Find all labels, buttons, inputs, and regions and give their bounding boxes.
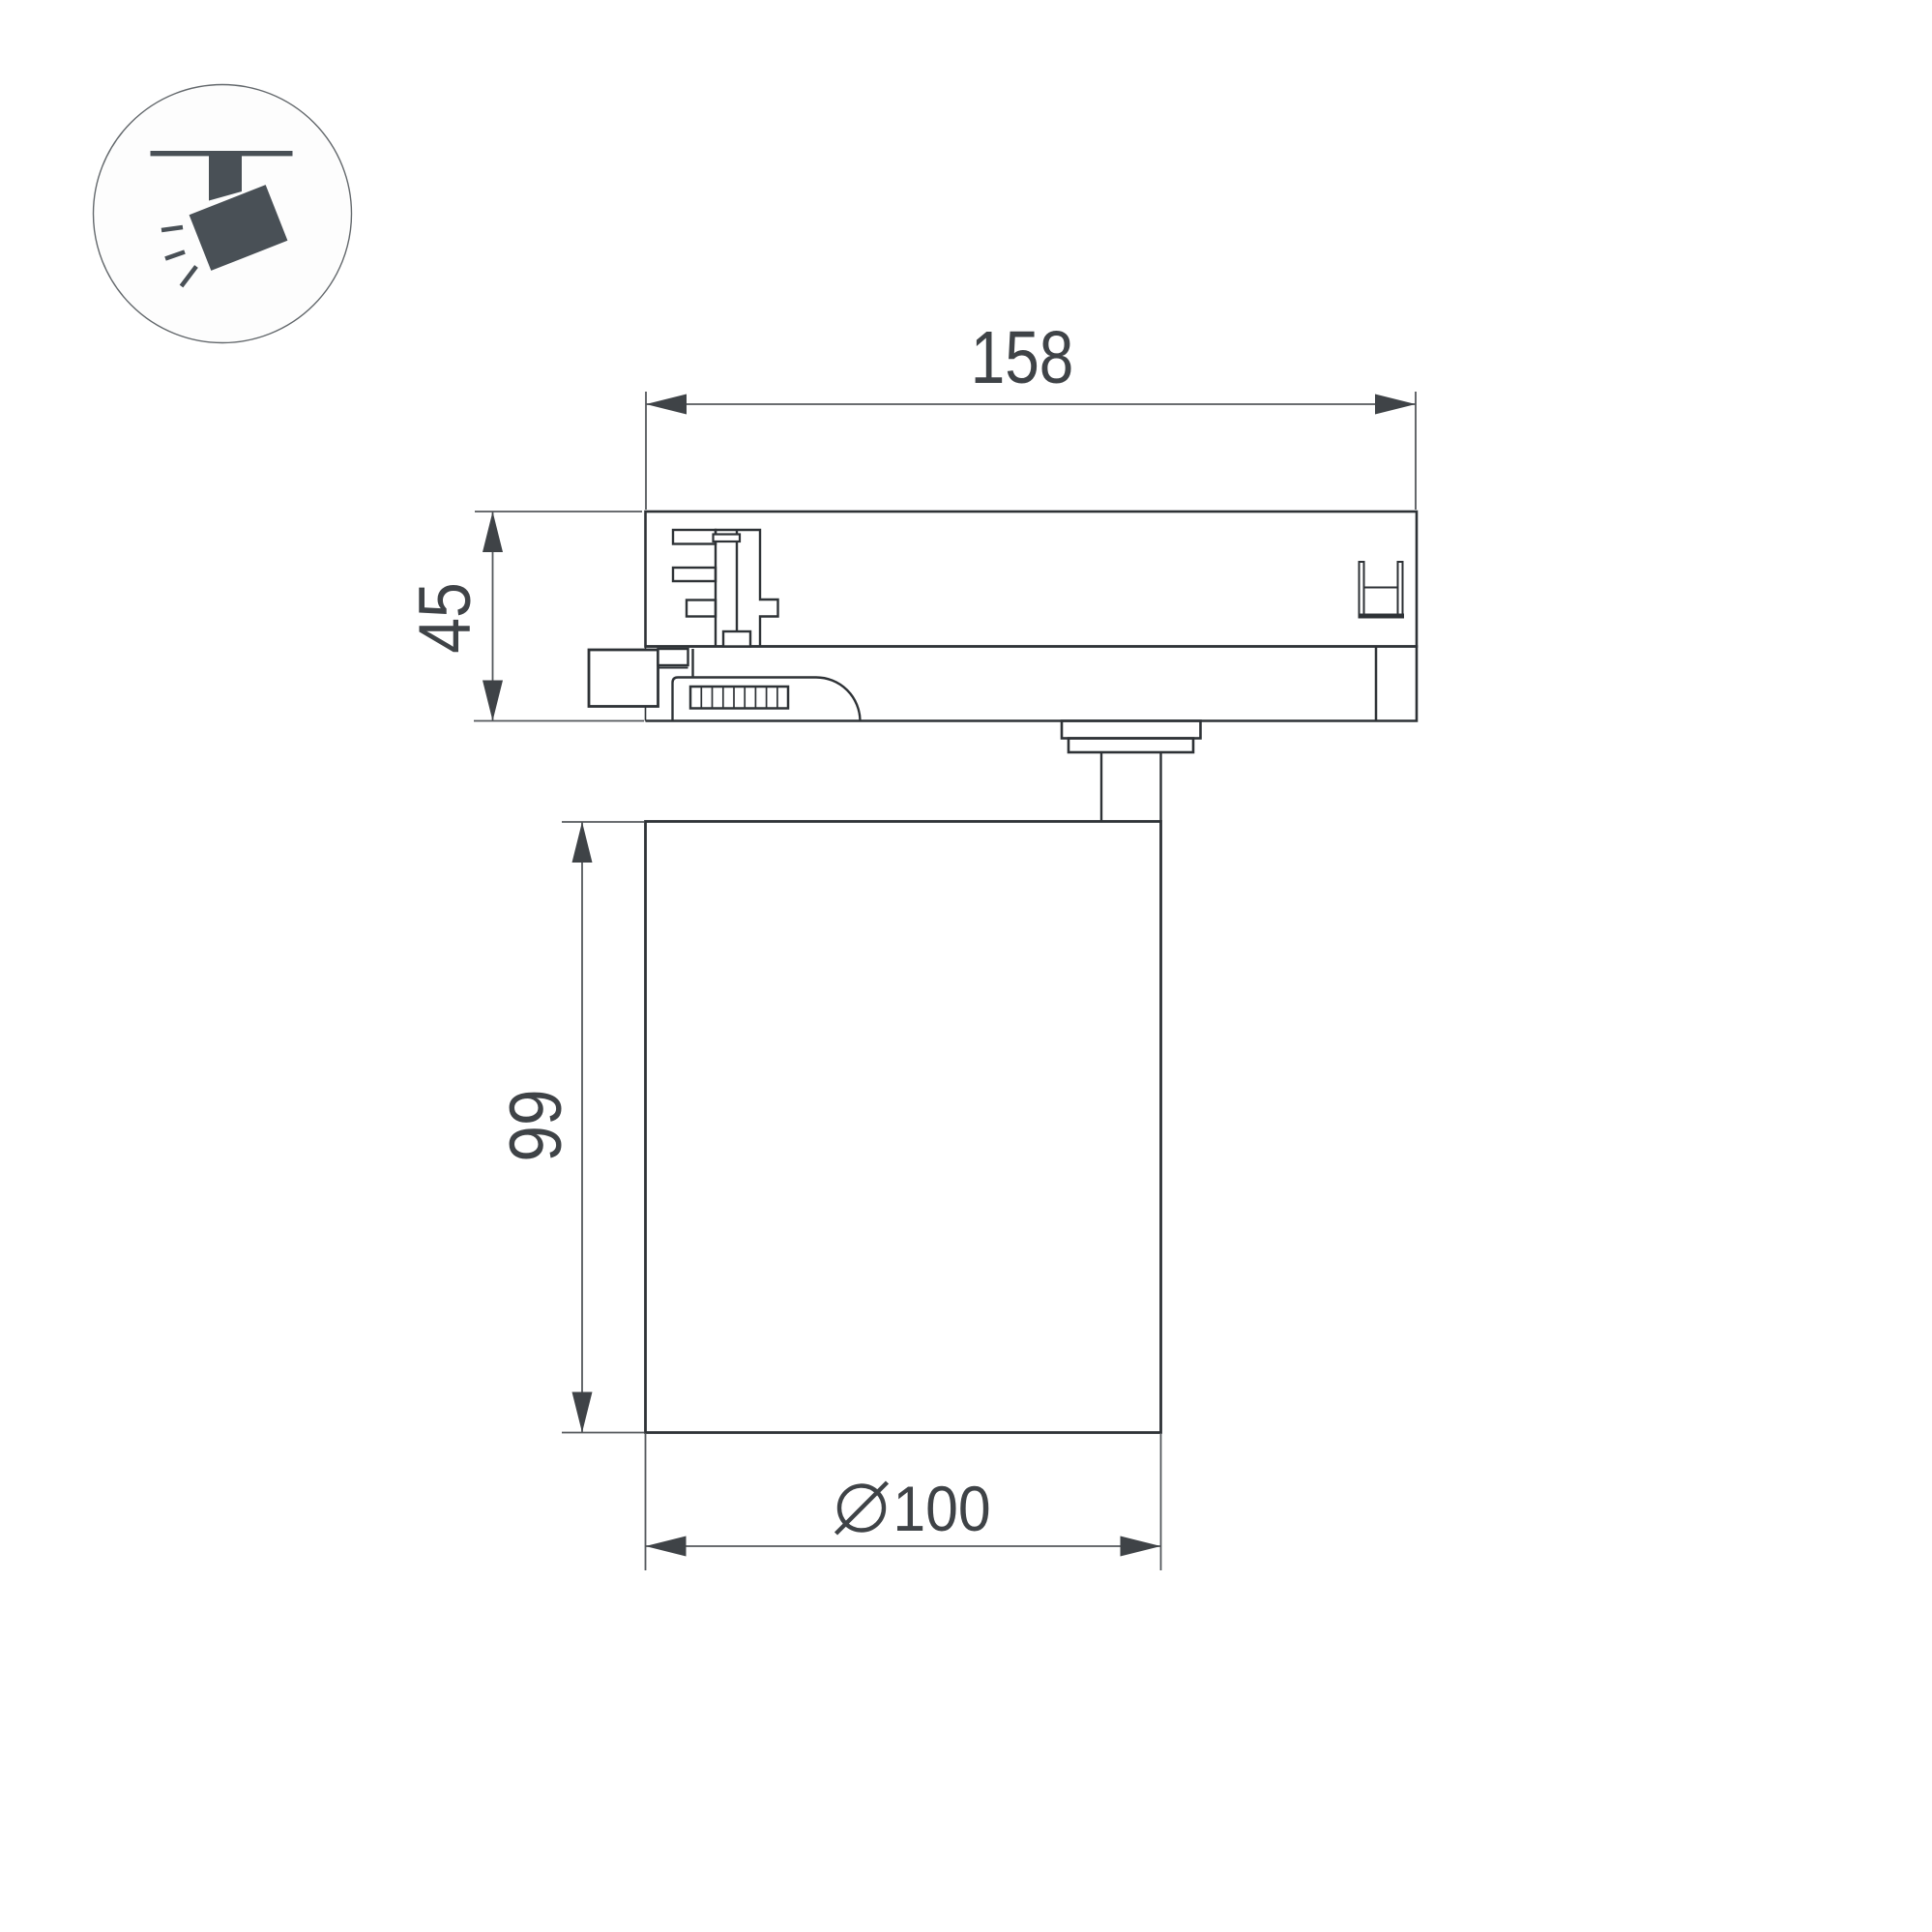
svg-text:99: 99 xyxy=(495,1089,577,1161)
svg-text:45: 45 xyxy=(405,582,486,654)
svg-text:158: 158 xyxy=(971,315,1074,398)
svg-text:100: 100 xyxy=(893,1475,990,1545)
